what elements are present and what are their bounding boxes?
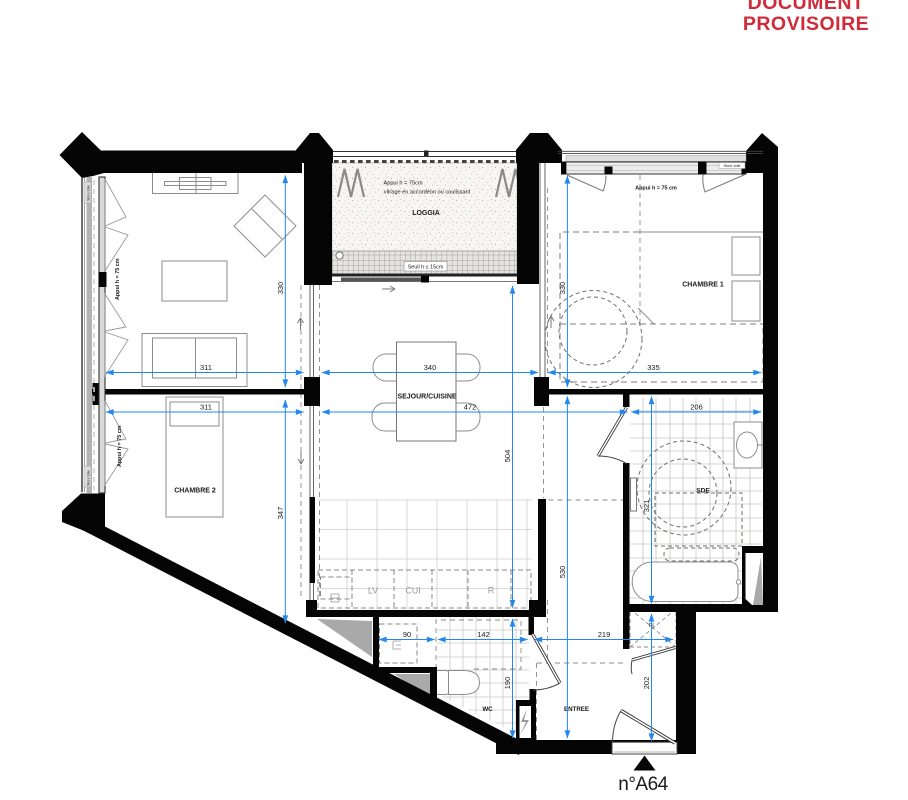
svg-text:Appui h = 75 cm: Appui h = 75 cm [115,258,121,300]
svg-text:206: 206 [690,403,703,412]
svg-text:504: 504 [503,450,512,463]
svg-text:Store toile: Store toile [723,164,740,168]
svg-text:DOCUMENT: DOCUMENT [748,0,865,14]
svg-text:n°A64: n°A64 [618,774,668,795]
svg-text:219: 219 [598,630,611,639]
svg-text:Store toile: Store toile [87,470,91,486]
svg-text:LOGGIA: LOGGIA [412,210,440,217]
svg-text:LV: LV [368,586,378,596]
svg-text:202: 202 [642,677,651,690]
svg-text:335: 335 [647,363,660,372]
svg-text:472: 472 [464,403,477,412]
svg-text:CHAMBRE 2: CHAMBRE 2 [174,488,216,495]
svg-text:347: 347 [276,507,285,520]
svg-text:Appui h = 75 cm: Appui h = 75 cm [117,425,123,467]
svg-text:311: 311 [200,403,212,412]
svg-text:SEJOUR/CUISINE: SEJOUR/CUISINE [397,394,456,401]
svg-text:90: 90 [403,630,411,639]
svg-text:WC: WC [482,706,493,713]
svg-text:311: 311 [200,363,212,372]
svg-text:vitrage en accordéon ou couli: vitrage en accordéon ou coulissant [384,190,471,196]
svg-text:PROVISOIRE: PROVISOIRE [743,13,869,35]
svg-text:142: 142 [477,630,490,639]
svg-text:530: 530 [558,566,567,579]
svg-text:CHAMBRE 1: CHAMBRE 1 [682,282,724,289]
svg-text:330: 330 [558,282,567,295]
svg-text:321: 321 [642,500,651,513]
svg-text:R: R [488,586,495,596]
svg-text:Seuil h ≤ 15cm: Seuil h ≤ 15cm [408,265,444,271]
svg-text:330: 330 [276,282,285,295]
svg-text:Store toile: Store toile [87,185,91,201]
svg-text:Appui h = 75cm: Appui h = 75cm [383,181,422,187]
svg-text:Appui h = 75 cm: Appui h = 75 cm [635,186,677,192]
svg-text:340: 340 [424,363,437,372]
svg-text:190: 190 [503,677,512,690]
svg-text:CUI: CUI [405,586,421,596]
